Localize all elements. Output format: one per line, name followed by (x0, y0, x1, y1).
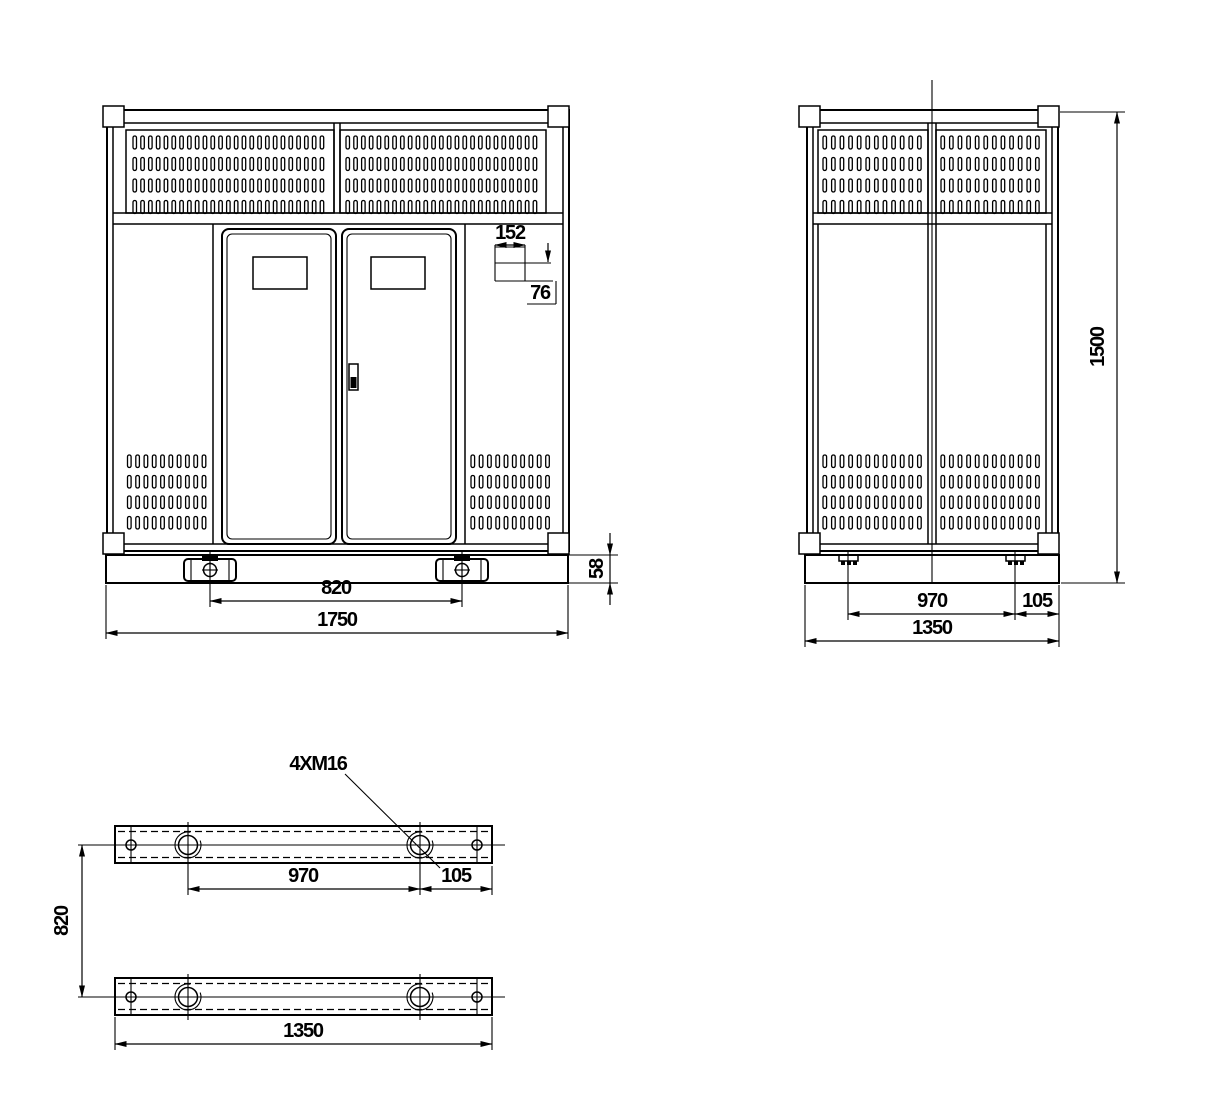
louver-detail-callout: 152 76 (495, 222, 556, 304)
dim-hole-spacing: 970 105 (188, 865, 492, 895)
door-handle-grip (351, 377, 357, 388)
corner-bracket (103, 106, 124, 127)
dim-label-louver-height: 76 (530, 282, 551, 304)
drawing-canvas: 58 820 1750 152 76 (0, 0, 1224, 1119)
door-window-left (253, 257, 307, 289)
vent-slots-bottom-left (128, 455, 206, 529)
dim-label-rail-spacing: 820 (51, 905, 73, 936)
dim-rail-spacing: 820 (51, 845, 82, 997)
dim-label-louver-width: 152 (495, 222, 526, 244)
dim-rail-length: 1350 (115, 1017, 492, 1050)
dim-label-hole-offset: 105 (441, 865, 472, 887)
vent-slots-top-right (346, 136, 537, 214)
leader-line (345, 774, 440, 868)
corner-bracket (799, 106, 820, 127)
dim-total-height: 1500 (1060, 112, 1125, 583)
corner-bracket (1038, 533, 1059, 554)
corner-bracket (799, 533, 820, 554)
thread-callout: 4XM16 (289, 753, 440, 868)
door-left-inner (227, 234, 331, 539)
door-window-right (371, 257, 425, 289)
dim-foot-spacing: 820 (210, 577, 462, 601)
dim-label-side-foot-spacing: 970 (917, 590, 948, 612)
corner-bracket (548, 106, 569, 127)
dim-label-base-height: 58 (586, 558, 608, 579)
front-view: 58 820 1750 152 76 (103, 106, 618, 639)
dim-label-side-foot-offset: 105 (1022, 590, 1053, 612)
corner-bracket (548, 533, 569, 554)
side-vent-slots-top-right (941, 136, 1039, 214)
vent-slots-bottom-right (471, 455, 549, 529)
door-right-inner (347, 234, 451, 539)
door-left (222, 229, 336, 544)
dim-label-foot-spacing: 820 (321, 577, 352, 599)
dim-label-hole-spacing: 970 (288, 865, 319, 887)
dim-label-rail-length: 1350 (283, 1020, 324, 1042)
thread-callout-label: 4XM16 (289, 753, 347, 775)
dim-label-total-width: 1750 (317, 609, 358, 631)
corner-bracket (103, 533, 124, 554)
dim-label-total-depth: 1350 (912, 617, 953, 639)
mounting-rail-bottom (78, 974, 505, 1020)
base-plan-view: 4XM16 970 105 1350 820 (51, 753, 505, 1050)
vent-slots-top-left (133, 136, 324, 214)
dim-base-height: 58 (568, 533, 618, 605)
side-vent-slots-bottom-right (941, 455, 1039, 529)
side-vent-slots-top-left (823, 136, 921, 214)
door-right (342, 229, 456, 544)
side-vent-slots-bottom-left (823, 455, 921, 529)
corner-bracket (1038, 106, 1059, 127)
dim-side-foot-spacing: 970 105 (848, 585, 1059, 647)
dim-label-total-height: 1500 (1087, 326, 1109, 367)
side-view: 1500 970 105 1350 (799, 80, 1125, 647)
